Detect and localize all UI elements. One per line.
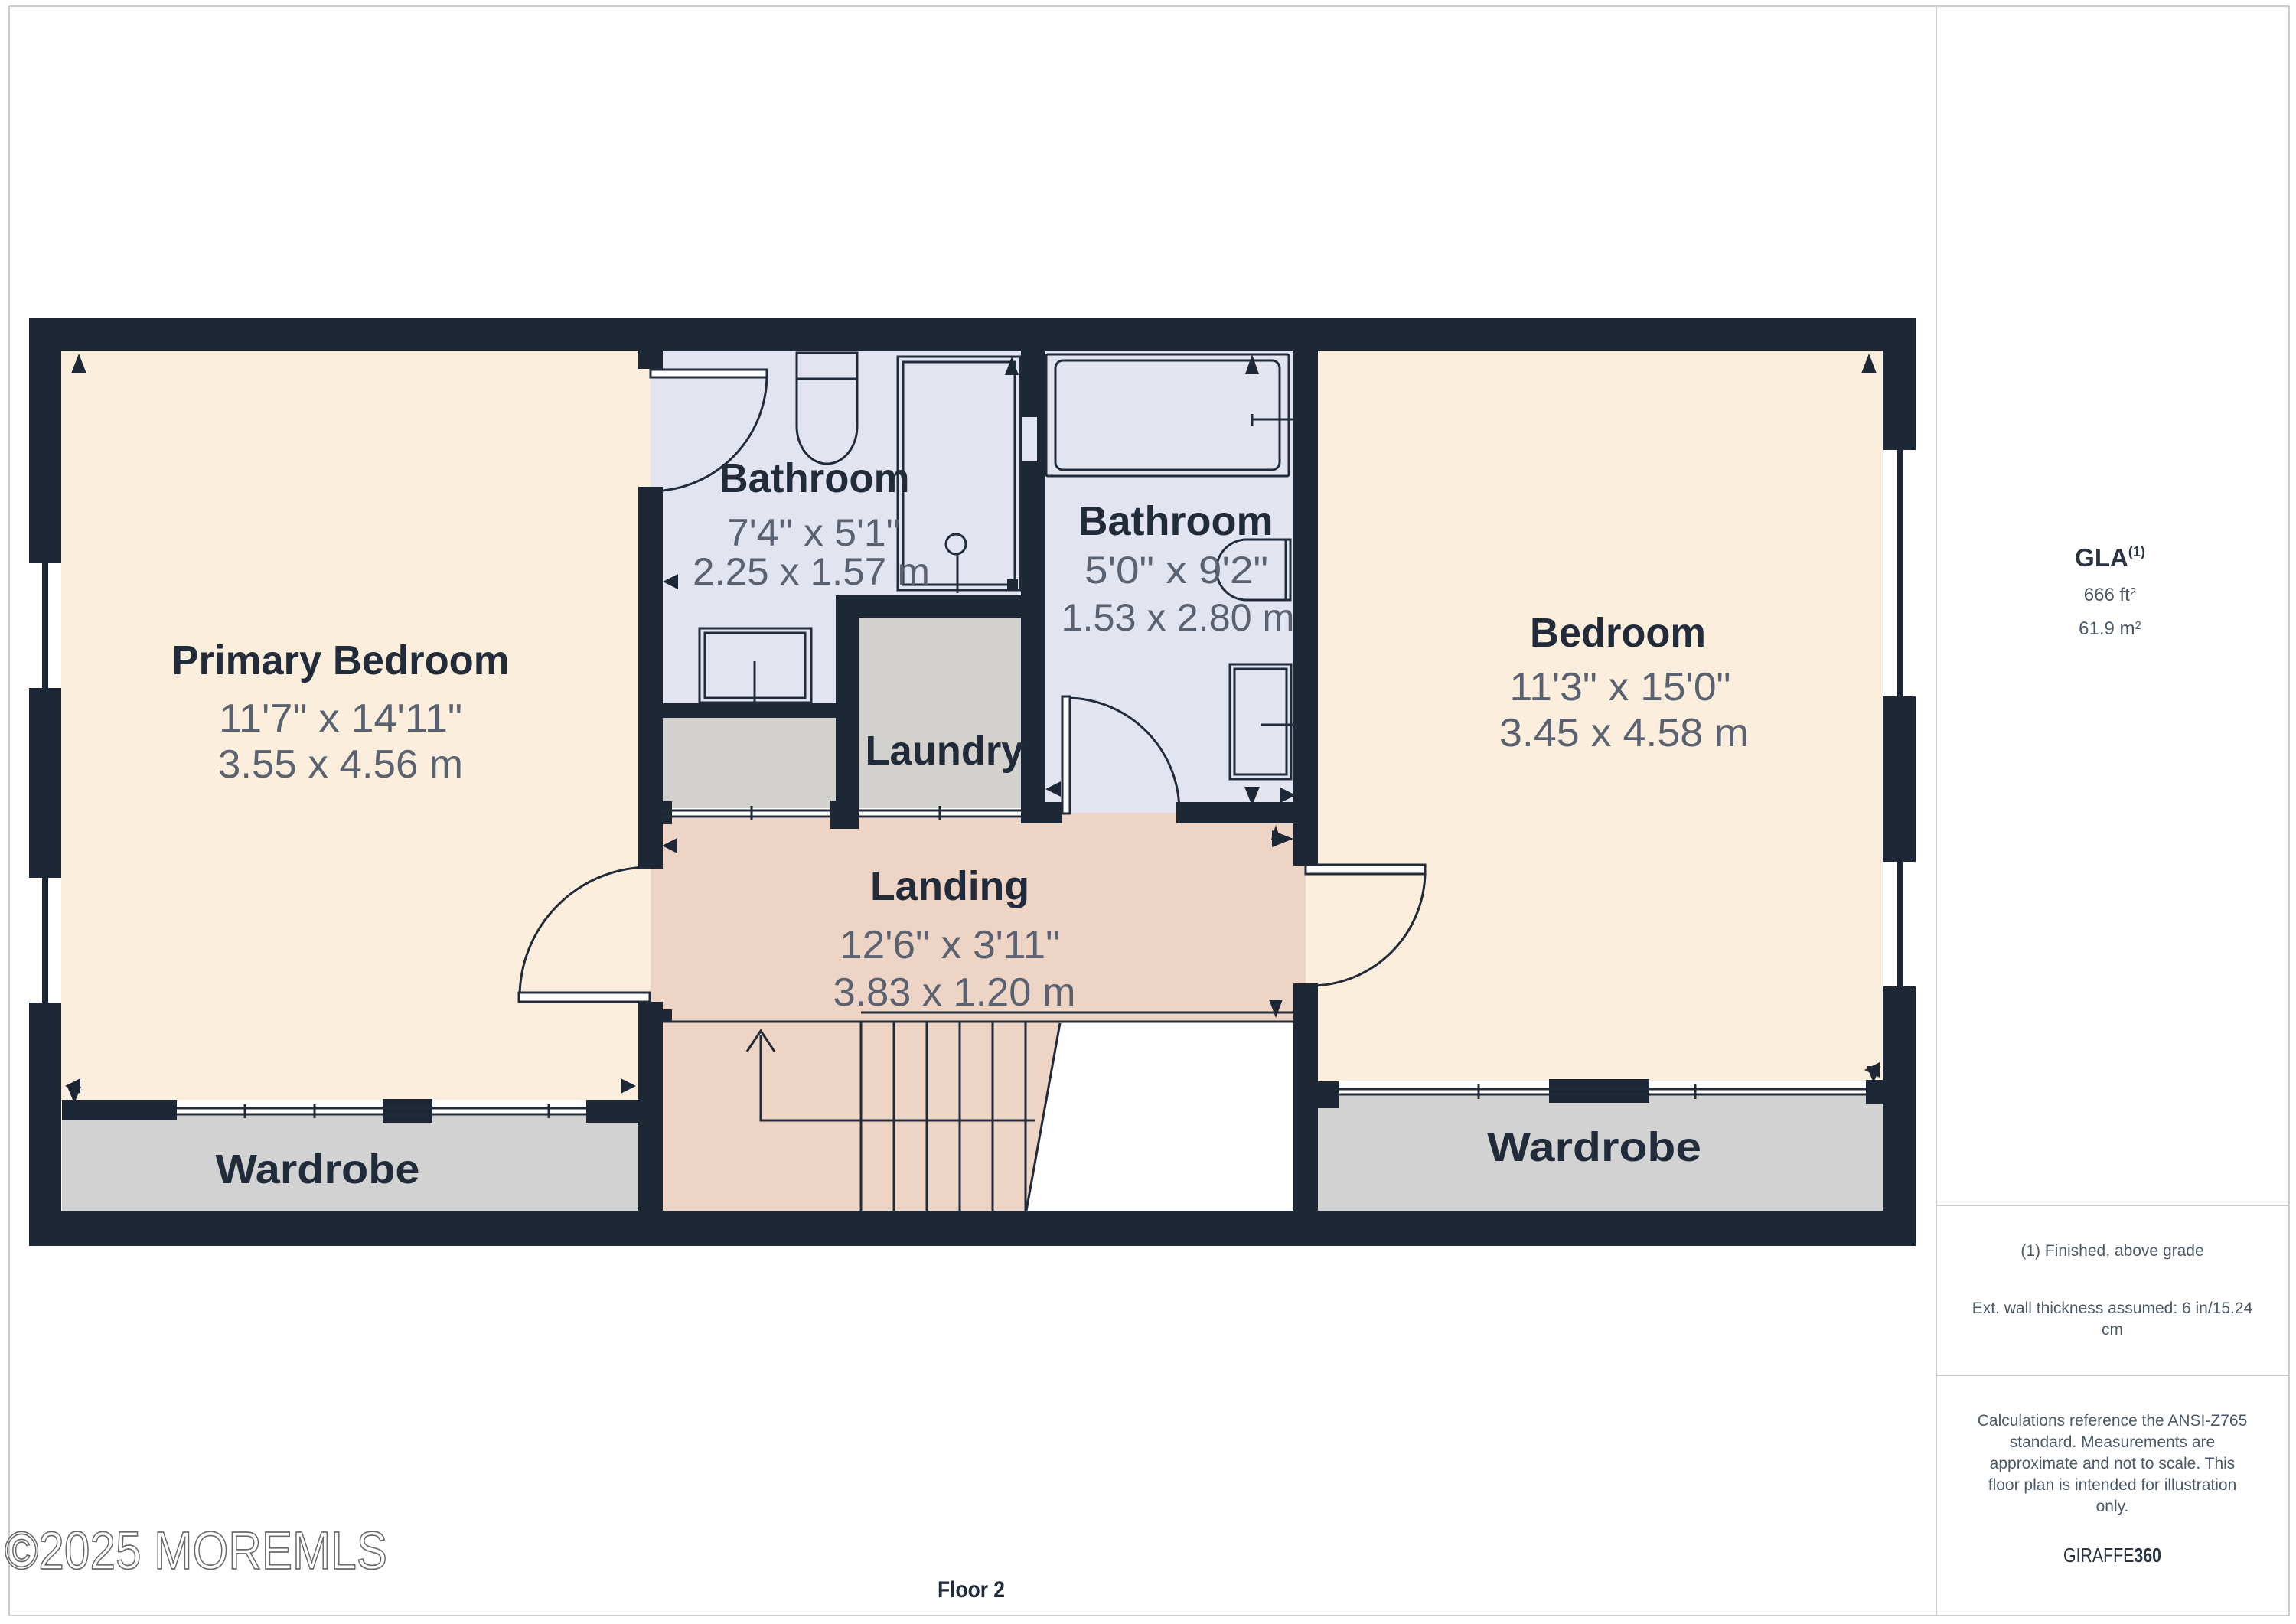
svg-text:(1) Finished, above grade: (1) Finished, above grade — [2020, 1242, 2203, 1260]
svg-text:Ext. wall thickness assumed: 6: Ext. wall thickness assumed: 6 in/15.24 — [1972, 1300, 2253, 1317]
svg-text:Primary Bedroom: Primary Bedroom — [172, 638, 510, 683]
svg-text:11'3" x 15'0": 11'3" x 15'0" — [1510, 665, 1731, 709]
svg-text:61.9 m2: 61.9 m2 — [2079, 618, 2141, 639]
svg-text:cm: cm — [2102, 1321, 2123, 1339]
svg-text:Laundry: Laundry — [866, 728, 1024, 774]
svg-text:12'6" x 3'11": 12'6" x 3'11" — [840, 923, 1060, 967]
svg-text:Floor 2: Floor 2 — [938, 1577, 1005, 1603]
svg-text:3.55 x 4.56 m: 3.55 x 4.56 m — [218, 742, 463, 787]
svg-text:Landing: Landing — [870, 863, 1029, 909]
svg-text:5'0" x 9'2": 5'0" x 9'2" — [1084, 549, 1268, 592]
svg-text:Bathroom: Bathroom — [719, 455, 910, 501]
svg-text:3.83 x 1.20 m: 3.83 x 1.20 m — [833, 970, 1076, 1015]
svg-text:Bedroom: Bedroom — [1530, 610, 1706, 656]
svg-text:©2025 MOREMLS: ©2025 MOREMLS — [5, 1521, 387, 1580]
svg-text:approximate and not to scale.: approximate and not to scale. This — [1990, 1455, 2236, 1472]
svg-text:floor plan is intended for ill: floor plan is intended for illustration — [1988, 1476, 2237, 1494]
svg-text:11'7" x 14'11": 11'7" x 14'11" — [219, 696, 462, 741]
svg-text:standard. Measurements are: standard. Measurements are — [2010, 1433, 2215, 1451]
svg-text:GIRAFFE360: GIRAFFE360 — [2063, 1544, 2161, 1567]
svg-text:2.25 x 1.57 m: 2.25 x 1.57 m — [693, 550, 930, 593]
svg-text:7'4" x 5'1": 7'4" x 5'1" — [727, 511, 900, 554]
svg-text:Wardrobe: Wardrobe — [216, 1146, 420, 1192]
svg-text:Bathroom: Bathroom — [1078, 498, 1274, 544]
svg-text:3.45 x 4.58 m: 3.45 x 4.58 m — [1499, 711, 1749, 755]
svg-text:Wardrobe: Wardrobe — [1487, 1124, 1701, 1170]
svg-text:only.: only. — [2096, 1498, 2129, 1515]
svg-text:1.53 x 2.80 m: 1.53 x 2.80 m — [1062, 596, 1295, 639]
svg-text:666 ft2: 666 ft2 — [2084, 585, 2136, 605]
svg-text:Calculations reference the ANS: Calculations reference the ANSI-Z765 — [1978, 1412, 2248, 1430]
